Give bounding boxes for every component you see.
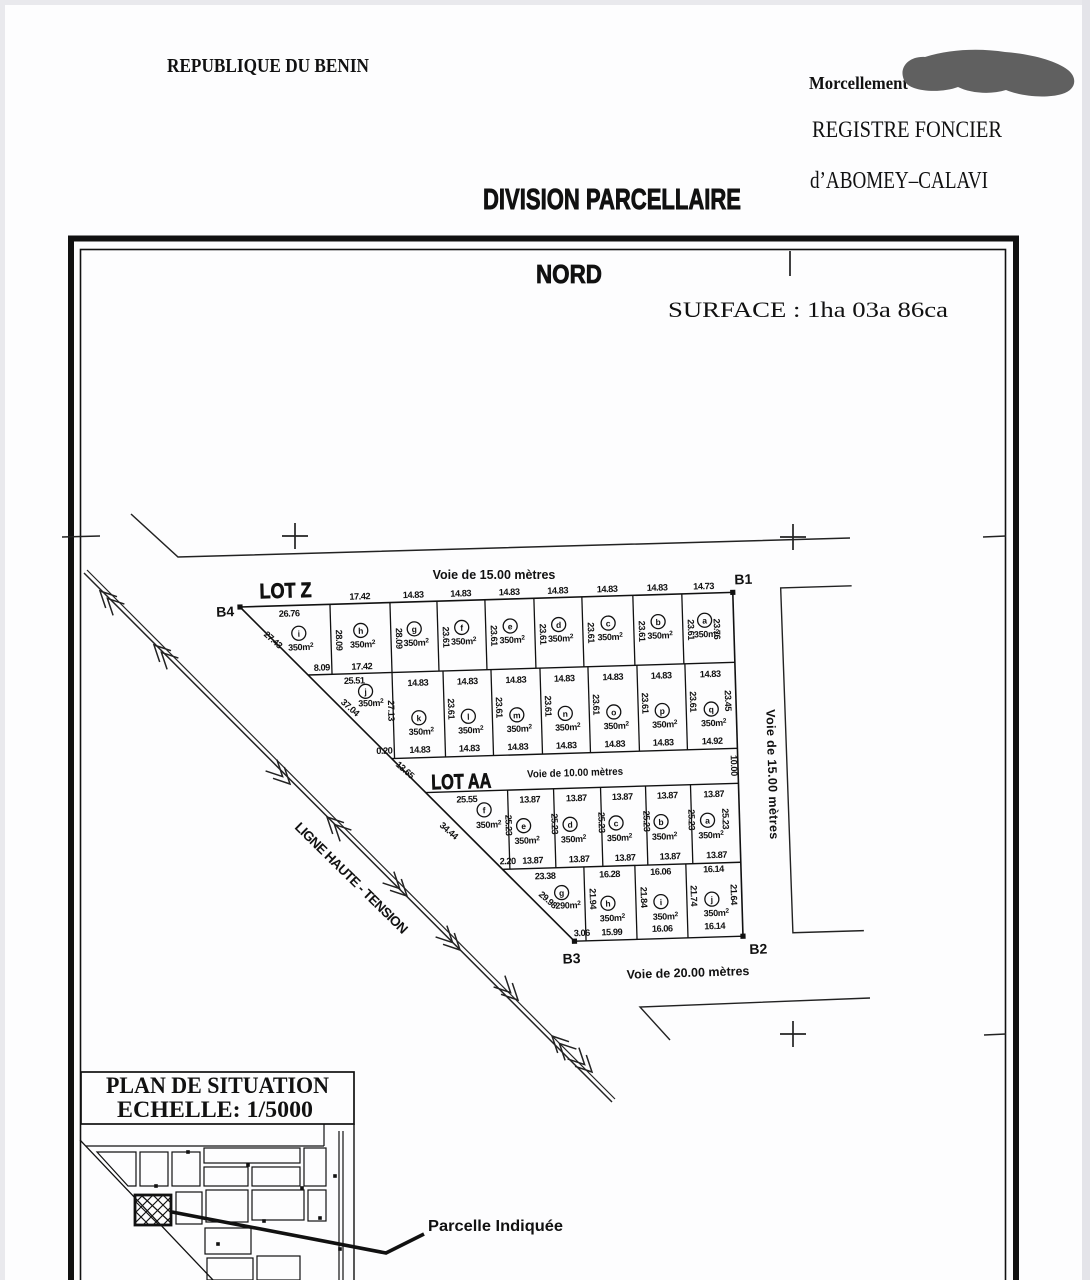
svg-text:d’ABOMEY–CALAVI: d’ABOMEY–CALAVI [810, 168, 988, 194]
svg-text:25.55: 25.55 [456, 794, 477, 805]
svg-text:14.73: 14.73 [693, 581, 714, 592]
svg-text:14.83: 14.83 [597, 584, 618, 595]
svg-text:25.23: 25.23 [641, 811, 652, 832]
svg-text:b: b [658, 817, 663, 827]
svg-text:b: b [655, 617, 660, 627]
svg-text:NORD: NORD [536, 259, 602, 289]
svg-text:LOT AA: LOT AA [431, 770, 492, 795]
svg-text:ECHELLE: 1/5000: ECHELLE: 1/5000 [117, 1097, 313, 1122]
svg-text:14.83: 14.83 [653, 737, 674, 748]
svg-text:8.09: 8.09 [314, 662, 331, 672]
svg-text:16.06: 16.06 [650, 866, 671, 877]
svg-text:15.99: 15.99 [601, 927, 622, 938]
svg-text:21.84: 21.84 [638, 887, 649, 909]
svg-text:d: d [567, 820, 572, 830]
svg-text:i: i [297, 629, 300, 639]
svg-text:14.83: 14.83 [407, 677, 428, 688]
svg-text:23.61: 23.61 [591, 694, 602, 715]
svg-text:l: l [467, 712, 470, 722]
svg-text:21.64: 21.64 [728, 884, 739, 906]
svg-text:k: k [416, 713, 421, 723]
svg-text:REPUBLIQUE DU BENIN: REPUBLIQUE DU BENIN [167, 55, 369, 77]
svg-text:h: h [358, 626, 363, 636]
svg-text:23.61: 23.61 [688, 691, 699, 712]
svg-text:g: g [559, 888, 564, 898]
svg-text:2.20: 2.20 [499, 856, 516, 866]
svg-text:23.61: 23.61 [543, 695, 554, 716]
svg-text:16.14: 16.14 [704, 921, 726, 932]
svg-text:p: p [660, 706, 665, 716]
svg-text:14.83: 14.83 [459, 743, 480, 754]
svg-text:14.83: 14.83 [700, 669, 721, 680]
svg-text:16.28: 16.28 [599, 869, 620, 880]
svg-text:10.00: 10.00 [729, 755, 740, 776]
svg-text:a: a [705, 816, 710, 826]
svg-text:25.23: 25.23 [596, 812, 607, 833]
svg-text:13.87: 13.87 [522, 855, 543, 866]
svg-text:23.61: 23.61 [640, 693, 651, 714]
svg-text:13.87: 13.87 [706, 850, 727, 861]
svg-text:q: q [708, 704, 713, 714]
svg-text:h: h [605, 899, 610, 909]
svg-text:23.61: 23.61 [586, 622, 597, 643]
svg-text:23.61: 23.61 [494, 697, 505, 718]
svg-text:14.83: 14.83 [505, 675, 526, 686]
svg-text:28.09: 28.09 [334, 630, 345, 651]
svg-text:B2: B2 [749, 941, 768, 958]
svg-text:23.76: 23.76 [712, 618, 723, 639]
svg-text:0.20: 0.20 [376, 746, 393, 756]
svg-text:m: m [513, 710, 521, 720]
svg-text:B3: B3 [562, 950, 581, 967]
svg-text:3.06: 3.06 [574, 928, 591, 938]
svg-text:i: i [660, 897, 663, 907]
svg-text:PLAN DE SITUATION: PLAN DE SITUATION [106, 1073, 329, 1098]
svg-text:e: e [521, 821, 526, 831]
svg-text:B4: B4 [216, 603, 235, 620]
svg-text:14.83: 14.83 [547, 585, 568, 596]
svg-text:j: j [363, 687, 367, 697]
svg-text:c: c [614, 818, 619, 828]
svg-text:14.83: 14.83 [499, 587, 520, 598]
svg-text:14.83: 14.83 [604, 739, 625, 750]
svg-text:13.87: 13.87 [612, 791, 633, 802]
svg-text:23.61: 23.61 [446, 698, 457, 719]
svg-text:o: o [611, 707, 616, 717]
svg-text:n: n [563, 709, 568, 719]
svg-text:13.87: 13.87 [566, 793, 587, 804]
svg-text:14.83: 14.83 [403, 590, 424, 601]
svg-text:16.14: 16.14 [703, 864, 725, 875]
svg-text:13.87: 13.87 [660, 851, 681, 862]
svg-text:25.23: 25.23 [549, 813, 560, 834]
svg-text:23.61: 23.61 [538, 624, 549, 645]
svg-text:14.92: 14.92 [702, 736, 723, 747]
svg-text:14.83: 14.83 [507, 742, 528, 753]
svg-text:SURFACE : 1ha 03a 86ca: SURFACE : 1ha 03a 86ca [668, 297, 948, 322]
svg-text:14.83: 14.83 [602, 672, 623, 683]
svg-text:d: d [556, 620, 561, 630]
svg-text:f: f [483, 805, 486, 815]
svg-text:e: e [508, 621, 513, 631]
svg-text:14.83: 14.83 [457, 676, 478, 687]
svg-text:14.83: 14.83 [647, 582, 668, 593]
svg-text:14.83: 14.83 [651, 670, 672, 681]
svg-text:DIVISION PARCELLAIRE: DIVISION PARCELLAIRE [483, 184, 741, 216]
svg-text:26.76: 26.76 [279, 608, 300, 619]
svg-text:14.83: 14.83 [556, 740, 577, 751]
svg-text:23.38: 23.38 [535, 871, 556, 882]
svg-text:23.61: 23.61 [441, 626, 452, 647]
svg-text:23.61: 23.61 [637, 621, 648, 642]
svg-text:23.45: 23.45 [723, 690, 734, 711]
svg-text:25.23: 25.23 [686, 809, 697, 830]
svg-text:27.13: 27.13 [386, 700, 397, 721]
svg-text:25.23: 25.23 [720, 808, 731, 829]
svg-text:23.61: 23.61 [686, 619, 697, 640]
svg-text:28.09: 28.09 [394, 628, 405, 649]
svg-text:13.87: 13.87 [569, 854, 590, 865]
svg-text:23.61: 23.61 [489, 625, 500, 646]
svg-text:13.87: 13.87 [657, 790, 678, 801]
svg-text:13.87: 13.87 [615, 852, 636, 863]
svg-text:LOT Z: LOT Z [259, 579, 312, 604]
svg-text:13.87: 13.87 [703, 789, 724, 800]
svg-text:14.83: 14.83 [554, 673, 575, 684]
svg-text:14.83: 14.83 [450, 588, 471, 599]
svg-text:14.83: 14.83 [409, 744, 430, 755]
svg-text:Parcelle Indiquée: Parcelle Indiquée [428, 1218, 563, 1235]
svg-text:REGISTRE FONCIER: REGISTRE FONCIER [812, 117, 1003, 142]
svg-text:g: g [411, 624, 416, 634]
svg-text:13.87: 13.87 [519, 794, 540, 805]
svg-text:17.42: 17.42 [351, 661, 372, 672]
svg-text:Voie de 15.00 mètres: Voie de 15.00 mètres [433, 568, 556, 582]
svg-text:B1: B1 [734, 571, 753, 588]
svg-text:f: f [460, 623, 463, 633]
svg-text:j: j [710, 894, 714, 904]
svg-text:c: c [606, 618, 611, 628]
svg-text:a: a [702, 616, 707, 626]
svg-text:Morcellement: Morcellement [809, 73, 908, 93]
svg-text:21.94: 21.94 [588, 888, 599, 910]
svg-text:25.23: 25.23 [503, 815, 514, 836]
svg-text:21.74: 21.74 [688, 885, 699, 907]
svg-text:25.51: 25.51 [344, 675, 365, 686]
svg-text:16.06: 16.06 [652, 923, 673, 934]
svg-text:17.42: 17.42 [349, 591, 370, 602]
